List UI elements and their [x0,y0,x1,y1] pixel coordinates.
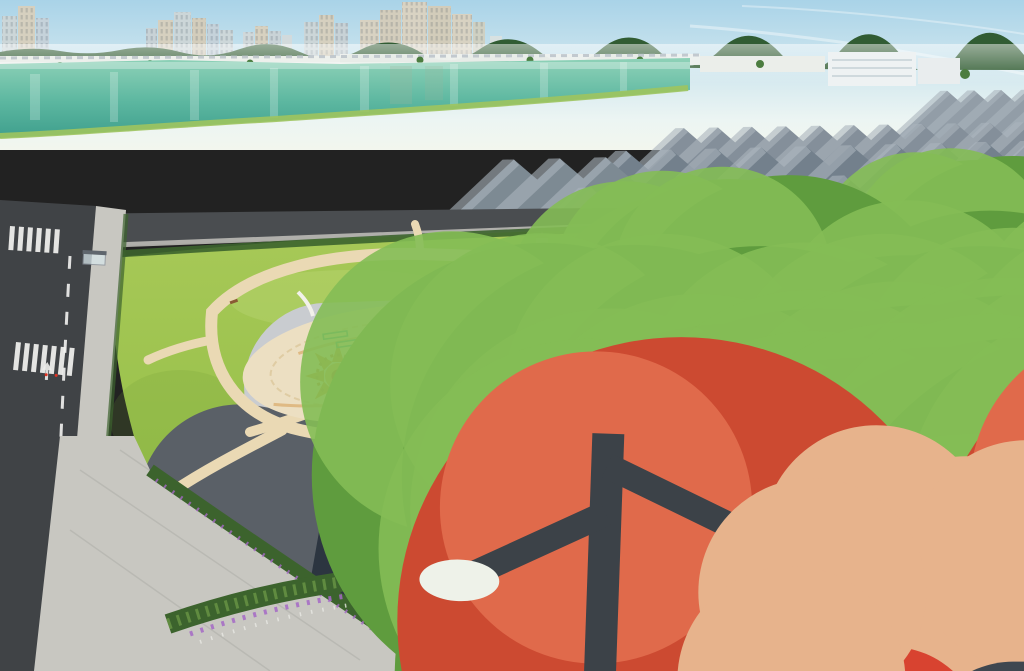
tower-reflection [390,66,412,104]
bus-shelter [82,250,107,265]
tower-reflection [425,66,443,100]
shore-reflection [0,62,690,69]
scene-canvas [0,0,1024,671]
aerial-render [0,0,1024,671]
midrise-building [918,58,960,84]
